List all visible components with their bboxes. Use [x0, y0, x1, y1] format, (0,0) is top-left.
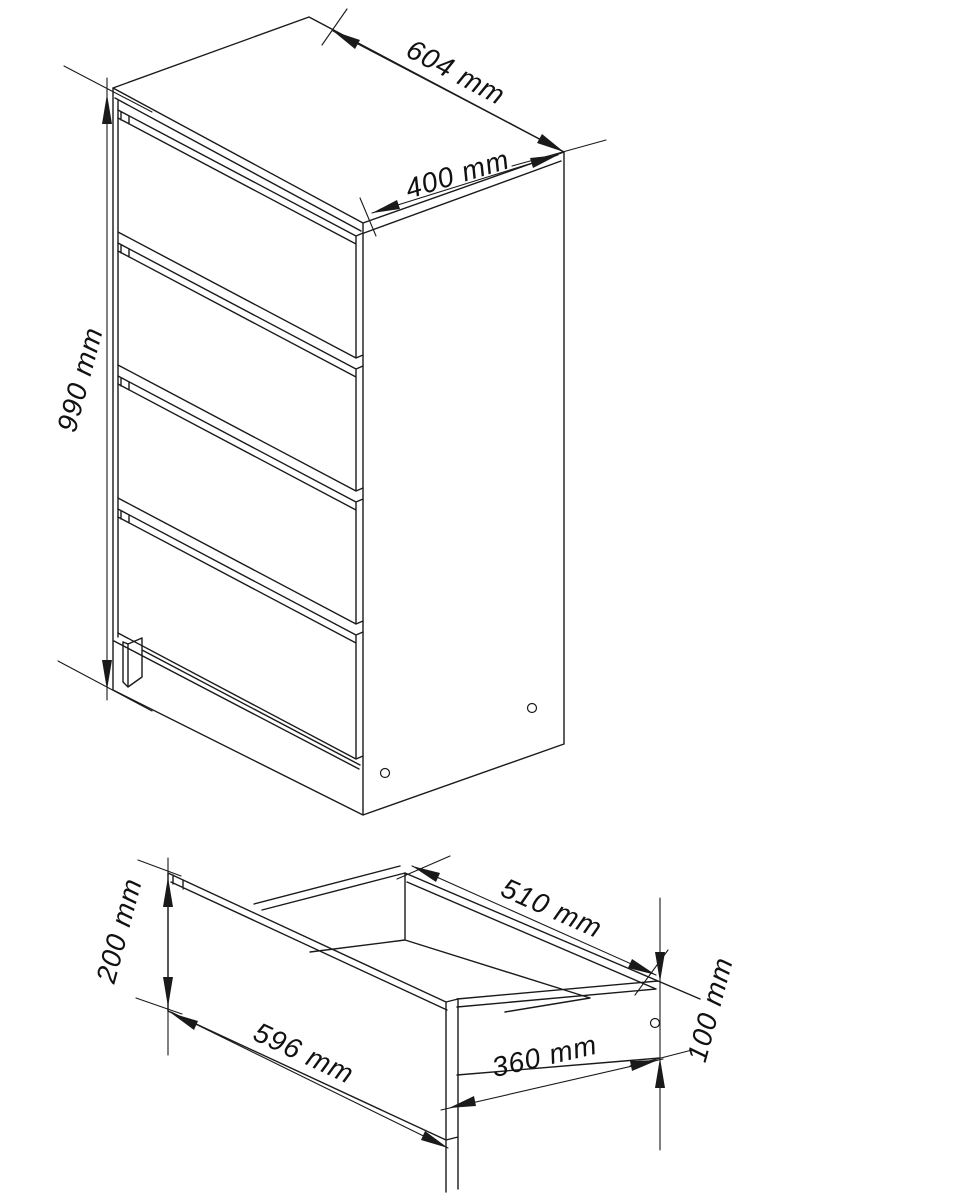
drawer-view: 200 mm 596 mm 510 mm 100 mm	[90, 856, 739, 1192]
arrowhead	[655, 952, 665, 982]
dimension-label-cabinet-height: 990 mm	[51, 324, 109, 436]
dimension-line	[171, 1012, 448, 1148]
dimension-label-drawer-side-height: 100 mm	[681, 954, 739, 1066]
dimension-label-drawer-side-depth: 360 mm	[489, 1029, 600, 1083]
technical-drawing-page: 990 mm 604 mm 400 mm	[0, 0, 963, 1200]
arrowhead	[412, 866, 440, 882]
dimension-drawer-rear-width: 510 mm	[397, 856, 668, 995]
cabinet-carcass-lines	[113, 17, 564, 815]
drawer-front-panel	[168, 873, 458, 1192]
arrowhead	[537, 134, 564, 152]
arrowhead	[163, 977, 173, 1007]
arrowhead	[628, 959, 656, 975]
dimension-drawer-front-height: 200 mm	[90, 858, 182, 1055]
arrowhead	[655, 1058, 665, 1088]
dimension-label-drawer-front-width: 596 mm	[249, 1016, 359, 1089]
cabinet-view: 990 mm 604 mm 400 mm	[51, 9, 606, 815]
dimension-label-drawer-rear-width: 510 mm	[497, 872, 608, 944]
arrowhead	[530, 155, 558, 168]
arrowhead	[333, 31, 360, 49]
dimension-label-cabinet-depth: 400 mm	[402, 143, 514, 204]
dimension-drawer-side-depth: 360 mm	[441, 1029, 663, 1110]
furniture-dimension-drawing: 990 mm 604 mm 400 mm	[0, 0, 963, 1200]
cabinet-base-and-leg	[114, 638, 360, 769]
dimension-drawer-front-width: 596 mm	[171, 1012, 448, 1148]
dimension-line	[333, 31, 564, 152]
drill-hole	[651, 1019, 660, 1028]
dimension-label-cabinet-width: 604 mm	[401, 33, 510, 111]
dimension-label-drawer-front-height: 200 mm	[90, 875, 148, 987]
drill-hole	[528, 704, 537, 713]
arrowhead	[449, 1096, 476, 1108]
drill-hole	[381, 769, 390, 778]
dimension-cabinet-height: 990 mm	[51, 66, 152, 711]
arrowhead	[102, 94, 112, 124]
arrowhead	[630, 1060, 658, 1071]
dimension-drawer-side-height: 100 mm	[630, 898, 739, 1150]
arrowhead	[171, 1013, 198, 1030]
dimension-cabinet-width: 604 mm	[322, 9, 606, 166]
